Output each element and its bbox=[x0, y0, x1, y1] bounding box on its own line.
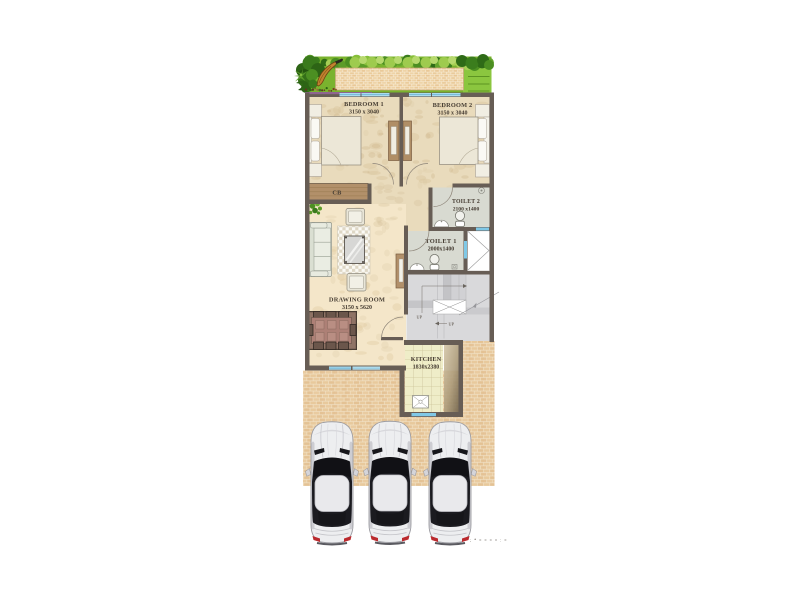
svg-text:TOILET 2: TOILET 2 bbox=[452, 199, 480, 205]
svg-text:3150 x 3040: 3150 x 3040 bbox=[438, 111, 468, 117]
svg-text:UP: UP bbox=[417, 315, 423, 320]
svg-text:TOILET 1: TOILET 1 bbox=[425, 238, 456, 245]
svg-text:1830x2380: 1830x2380 bbox=[413, 365, 440, 371]
svg-text:BEDROOM 1: BEDROOM 1 bbox=[344, 101, 384, 108]
svg-text:CB: CB bbox=[332, 190, 342, 197]
svg-text:3150 x 5620: 3150 x 5620 bbox=[342, 305, 372, 311]
svg-text:UP: UP bbox=[449, 322, 455, 327]
svg-text:; * = = = = : =: ; * = = = = : = bbox=[470, 538, 508, 543]
svg-text:KITCHEN: KITCHEN bbox=[411, 356, 442, 363]
svg-text:DRAWING ROOM: DRAWING ROOM bbox=[329, 297, 385, 304]
svg-text:3150 x 3040: 3150 x 3040 bbox=[349, 110, 379, 116]
svg-text:2100 x1400: 2100 x1400 bbox=[453, 207, 480, 213]
svg-text:2000x1400: 2000x1400 bbox=[428, 247, 455, 253]
svg-text:BEDROOM 2: BEDROOM 2 bbox=[433, 102, 473, 109]
